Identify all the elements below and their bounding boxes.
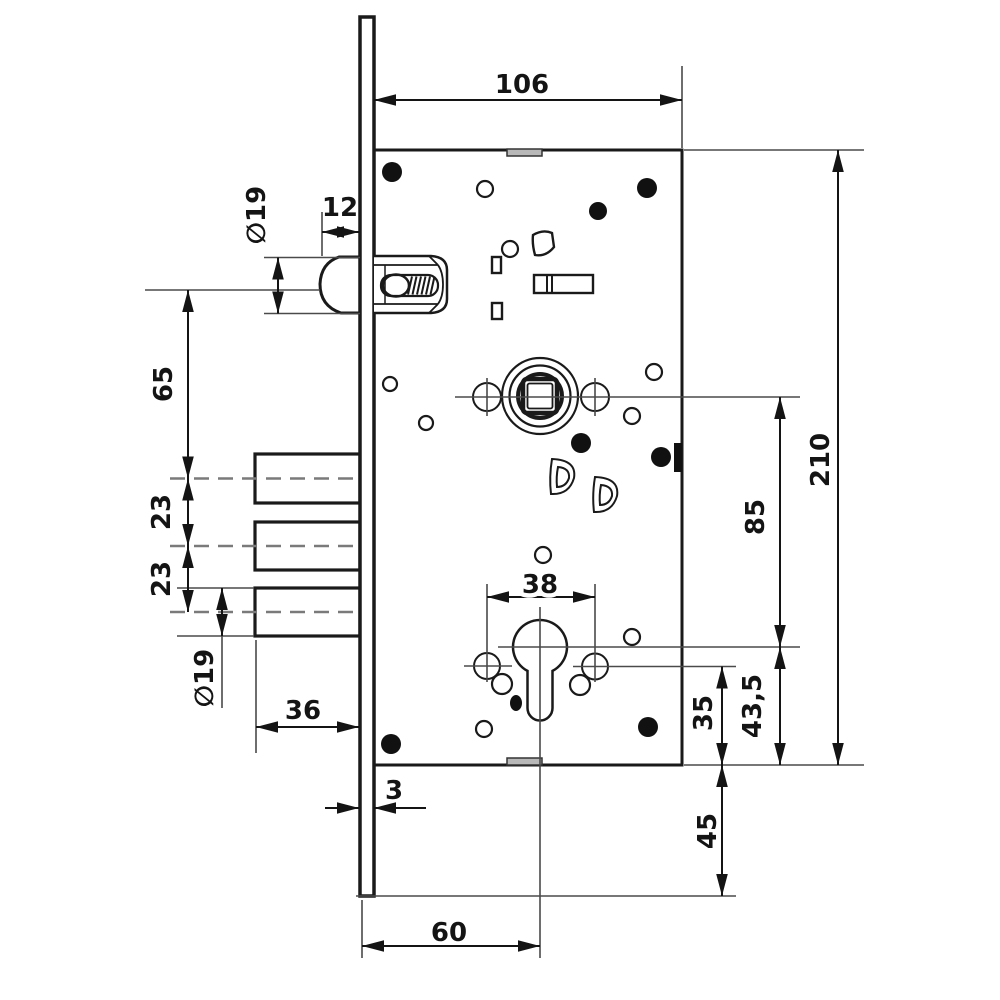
drawing-svg: 106 12 ∅19 65 23 23 ∅19 36 3 60 210 85 4… [0, 0, 1000, 1000]
dim-label-case-width: 106 [495, 70, 549, 100]
dim-label-spindle-to-cylinder: 85 [741, 499, 771, 535]
dim-label-bolt-spacing-upper: 23 [147, 494, 177, 530]
lock-dimension-drawing: 106 12 ∅19 65 23 23 ∅19 36 3 60 210 85 4… [0, 0, 1000, 1000]
right-edge-catch [674, 443, 682, 472]
dim-label-case-height: 210 [806, 433, 836, 487]
dim-label-latch-to-bolt: 65 [149, 366, 179, 402]
dim-label-latch-diameter: ∅19 [242, 186, 272, 244]
dim-label-fixing-to-bottom: 35 [689, 695, 719, 731]
faceplate [360, 17, 374, 896]
dim-label-cylinder-fixing-span: 38 [522, 570, 558, 600]
cam-wedge [533, 231, 554, 255]
latch-case [374, 256, 447, 313]
dim-label-cylinder-to-bottom: 43,5 [738, 674, 768, 738]
dim-label-bolt-throw: 36 [285, 696, 321, 726]
dim-label-backset: 60 [431, 918, 467, 948]
dim-label-faceplate-extension: 45 [693, 813, 723, 849]
dim-label-bolt-spacing-lower: 23 [147, 561, 177, 597]
top-tab [507, 149, 542, 156]
latch-bolt-head [320, 257, 362, 313]
dim-label-faceplate-thickness: 3 [385, 776, 403, 806]
dim-label-latch-protrusion: 12 [322, 193, 358, 223]
dim-label-bolt-diameter: ∅19 [190, 649, 220, 707]
bottom-tab [507, 758, 542, 765]
